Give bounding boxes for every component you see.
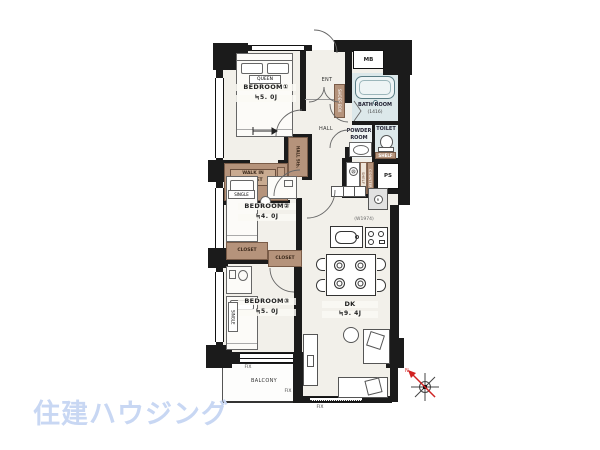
bathtub	[355, 76, 395, 99]
desk-item	[284, 180, 293, 187]
powder-line2: ROOM	[350, 135, 367, 141]
wall	[293, 352, 303, 403]
bedroom3-name: BEDROOM③	[238, 298, 296, 305]
toilet-label: TOILET	[374, 127, 398, 133]
entrance-label: ENT	[312, 78, 342, 84]
fix-label-1: FIX	[238, 365, 258, 370]
refrigerator: R	[368, 188, 388, 210]
wall	[300, 51, 306, 111]
stove	[365, 227, 388, 248]
hall-storage: HALL Stb.	[288, 137, 308, 177]
fix-label-3: FIX	[310, 405, 330, 410]
window-bedroom1	[252, 45, 304, 51]
tv-board	[303, 334, 318, 386]
wall	[390, 205, 399, 338]
bed-headboard	[237, 54, 292, 61]
bedroom1-size: ≒5. 0J	[236, 95, 296, 102]
pipe-space: PS	[377, 163, 399, 189]
window-mullion	[240, 358, 294, 359]
plate	[334, 260, 345, 271]
grill	[379, 240, 385, 244]
powder-room-label: POWDER ROOM	[344, 128, 374, 141]
single-bed-2-label: SINGLE	[228, 190, 255, 199]
pillow	[267, 63, 289, 74]
window-left-1	[215, 78, 224, 158]
bedroom1-name: BEDROOM①	[236, 84, 296, 91]
washbasin-bowl	[353, 145, 369, 155]
bed-foot-line	[227, 235, 257, 236]
bathtub-inner	[359, 80, 391, 95]
dk-size: ≒9. 4J	[322, 311, 378, 318]
plate	[334, 278, 345, 289]
single-bed-3-label-box: SINGLE	[228, 302, 238, 332]
washbasin	[349, 142, 372, 157]
meter-box: MB	[353, 50, 384, 69]
closet-right: CLOSET	[268, 250, 302, 267]
window-balcony-door	[240, 353, 294, 363]
meter-box-label: MB	[364, 57, 374, 63]
kitchen-sink-unit	[330, 226, 363, 248]
compass-north-label: N	[405, 368, 409, 374]
dining-chair	[316, 258, 325, 271]
balcony-label: BALCONY	[236, 379, 292, 385]
bed-foot-line	[237, 129, 292, 130]
dining-chair	[316, 279, 325, 292]
closet-left-label: CLOSET	[227, 243, 267, 259]
compass: N	[404, 366, 442, 404]
window-left-2	[215, 188, 224, 248]
washer-icon: W	[349, 167, 358, 176]
burner	[368, 231, 374, 237]
toilet-shelf: SHELF	[375, 152, 396, 159]
refrigerator-icon: R	[374, 195, 383, 204]
plate	[355, 260, 366, 271]
bedroom2-size: ≒4. 0J	[238, 214, 296, 221]
shelf-divider	[354, 187, 355, 196]
compass-icon: N	[404, 366, 442, 404]
bed-foot-line	[227, 343, 257, 344]
desk-bedroom3	[226, 266, 252, 294]
round-table	[343, 327, 359, 343]
powder-line1: POWDER	[347, 128, 372, 134]
bedroom2-name: BEDROOM②	[238, 203, 296, 210]
burner	[368, 239, 374, 245]
burner	[378, 231, 384, 237]
kitchen-upper-shelf	[331, 186, 366, 197]
bathroom-name: BATH ROOM	[352, 103, 398, 109]
closet-left: CLOSET	[226, 242, 268, 260]
desk-chair	[238, 270, 248, 281]
plate	[355, 278, 366, 289]
hall-label: HALL	[308, 127, 344, 133]
single-bed-3-label: SINGLE	[229, 303, 237, 331]
bathroom-size: (1416)	[352, 110, 398, 115]
shoes-box-label: SHOES BOX	[335, 85, 344, 117]
company-logo: 住建ハウジング	[33, 392, 229, 431]
sink-bowl	[335, 231, 357, 244]
wall	[352, 121, 398, 125]
shelf-divider	[343, 187, 344, 196]
dining-table	[326, 254, 376, 296]
hall-storage-label: HALL Stb.	[289, 138, 307, 176]
dk-name: DK	[322, 301, 378, 308]
desk-item	[229, 270, 236, 279]
desk-bedroom2	[267, 176, 297, 199]
window-mullion	[310, 400, 362, 401]
pillow	[241, 63, 263, 74]
kitchen-width-label: (W1974)	[348, 217, 380, 222]
closet-right-label: CLOSET	[269, 251, 301, 266]
floor-plan: MB PS ENT SHOES BOX HALL QUEEN BEDROOM① …	[0, 0, 600, 450]
shoes-box: SHOES BOX	[334, 84, 345, 118]
fix-label-2: FIX	[278, 389, 298, 394]
bedroom3-size: ≒5. 0J	[238, 309, 296, 316]
toilet-shelf-label: SHELF	[376, 153, 395, 158]
tv-board-handle	[307, 355, 314, 367]
pipe-space-label: PS	[384, 173, 392, 179]
faucet	[355, 235, 359, 239]
window-left-3	[215, 272, 224, 342]
